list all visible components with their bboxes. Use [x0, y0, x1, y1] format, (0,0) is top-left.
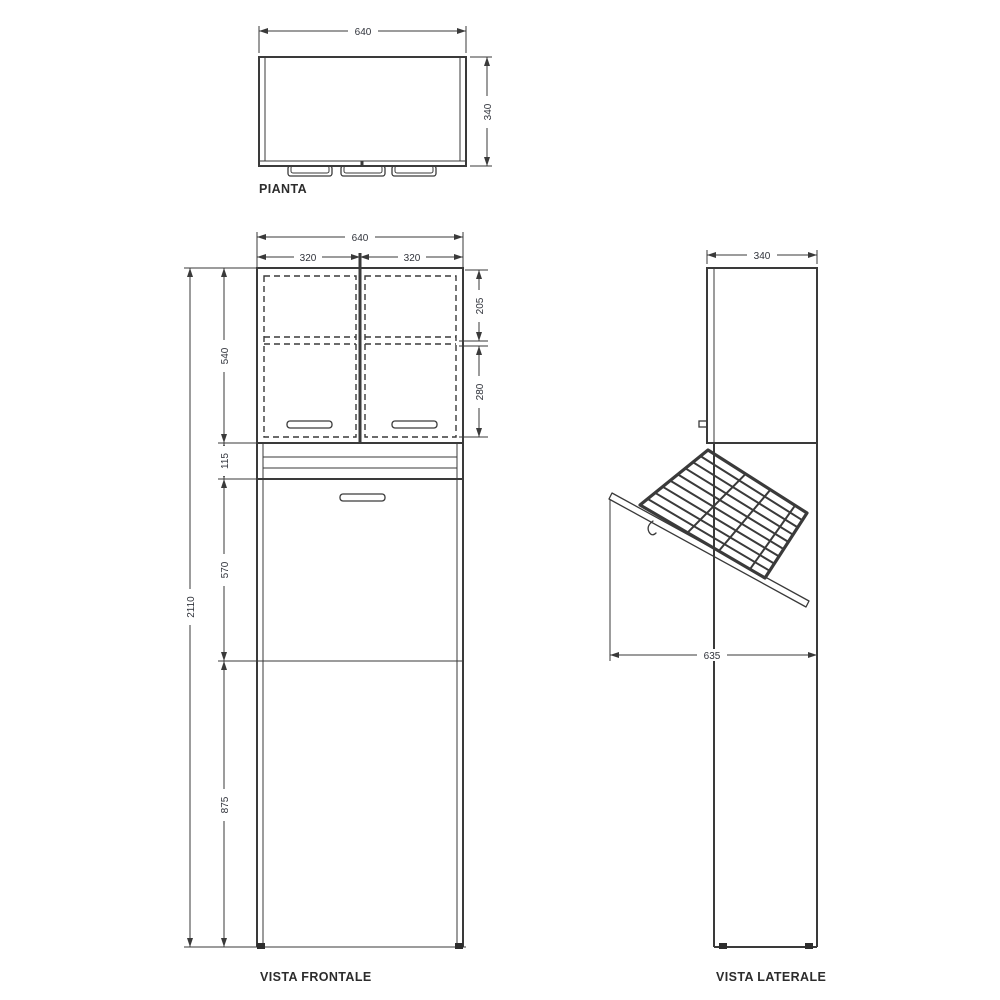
side-dim-depth: 340	[707, 249, 817, 262]
front-dim-band: 115	[218, 443, 231, 479]
front-dim-door-right-label: 320	[404, 253, 421, 264]
front-dim-door-right: 320	[360, 251, 463, 264]
front-dim-shelf-lower-label: 280	[475, 383, 486, 400]
front-dim-door-left-label: 320	[300, 253, 317, 264]
plan-dim-width: 640	[259, 25, 466, 38]
front-left-foot	[257, 943, 265, 949]
side-handle-stub	[699, 421, 707, 427]
side-front-foot	[719, 943, 727, 949]
plan-dim-depth-label: 340	[483, 103, 494, 120]
side-upper-cabinet	[699, 268, 817, 443]
front-dim-lower-label: 875	[220, 796, 231, 813]
front-dim-lower: 875	[218, 661, 231, 947]
front-upper-cabinet	[257, 253, 463, 443]
upper-right-door-handle	[392, 421, 437, 428]
plan-view: 640 340 PIANTA	[259, 25, 494, 196]
wire-basket-rack	[640, 450, 807, 578]
side-dim-depth-label: 340	[754, 251, 771, 262]
side-view-title: VISTA LATERALE	[716, 970, 826, 984]
front-lower-cabinet	[184, 443, 466, 949]
technical-drawing: 640 340 PIANTA	[0, 0, 1000, 1000]
side-back-foot	[805, 943, 813, 949]
front-dim-total-height-label: 2110	[186, 596, 197, 618]
front-dim-door-left: 320	[257, 251, 360, 264]
front-view-title: VISTA FRONTALE	[260, 970, 372, 984]
front-dim-band-label: 115	[220, 453, 231, 469]
front-dim-mid-door-label: 570	[220, 561, 231, 578]
front-view: 640 320 320	[184, 231, 488, 984]
plan-dim-width-label: 640	[355, 27, 372, 38]
plan-view-title: PIANTA	[259, 182, 307, 196]
front-right-foot	[455, 943, 463, 949]
mid-door-handle	[340, 494, 385, 501]
front-dim-upper-height: 540	[218, 268, 231, 443]
front-dim-width: 640	[257, 231, 463, 244]
front-dim-upper-height-label: 540	[220, 347, 231, 364]
plan-handle-tabs	[288, 166, 436, 176]
upper-left-door-handle	[287, 421, 332, 428]
plan-cabinet-outline	[259, 57, 466, 166]
plan-dim-depth: 340	[470, 57, 494, 166]
rack-frame	[640, 450, 807, 578]
front-dim-mid-door: 570	[218, 479, 231, 661]
side-dim-open-door-label: 635	[704, 651, 721, 662]
front-dim-shelf-upper-label: 205	[475, 297, 486, 314]
side-view: 340	[609, 249, 826, 984]
front-dim-total-height: 2110	[184, 268, 197, 947]
drawing-sheet: 640 340 PIANTA	[0, 0, 1000, 1000]
front-dim-width-label: 640	[352, 233, 369, 244]
